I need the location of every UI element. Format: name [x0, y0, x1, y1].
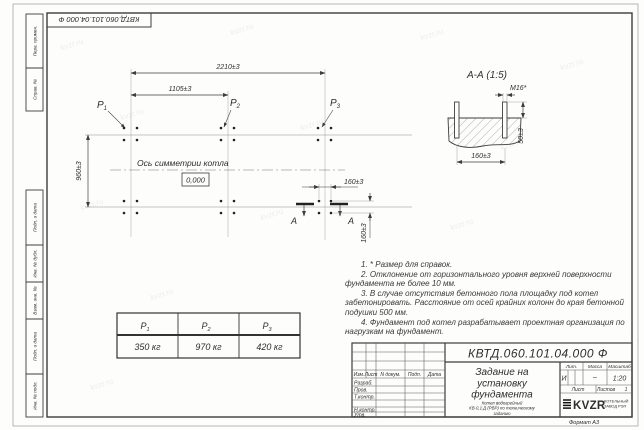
load-point-labels: P1 P2 P3	[97, 98, 341, 112]
svg-text:Лит.: Лит.	[565, 364, 577, 370]
dimension-bolt-thread: М16*	[495, 85, 527, 101]
symmetry-axis-label: Ось симметрии котла	[137, 158, 229, 168]
logo-text: KVZR	[573, 400, 606, 412]
svg-text:N докум.: N докум.	[380, 372, 400, 378]
role-labels: Разраб. Пров. Т.контр. Н.контр. Утв.	[354, 380, 376, 418]
loads-header-p1: P1	[140, 321, 149, 333]
loads-value-p2: 970 кг	[195, 342, 222, 352]
sheet-borders	[13, 4, 638, 426]
dimension-bolt-horizontal: 160±3	[302, 179, 364, 199]
side-cell-sprav-n: Справ. №	[33, 79, 38, 100]
symmetry-axis: Ось симметрии котла	[110, 158, 345, 170]
dimension-spacing: 160±3	[457, 146, 505, 165]
loads-header-p2: P2	[201, 321, 210, 333]
side-stamps: Перв. примен. Справ. № Подп. и дата Инв.…	[26, 14, 43, 417]
svg-text:960±3: 960±3	[76, 161, 83, 181]
svg-text:фундамента: фундамента	[471, 389, 533, 401]
side-cell-podp-data-2: Подп. и дата	[33, 332, 38, 361]
point-label-p1: P1	[97, 100, 107, 112]
drawing-sheet: kvzr.ru kvzr.ru kvzr.ru kvzr.ru kvzr.ru …	[0, 0, 644, 430]
sheet-count-row: Лист Листов 1	[571, 387, 628, 393]
top-designation-text: КВТД.060.101.04.000 Ф	[59, 15, 140, 24]
lit-mass-scale-headers: Лит. Масса Масштаб	[565, 364, 631, 370]
loads-header-p3: P3	[262, 321, 272, 333]
cut-letter-right: А	[347, 216, 354, 226]
svg-text:1105±3: 1105±3	[169, 86, 192, 93]
note-1: 1. * Размер для справок.	[345, 260, 632, 270]
mass-value: –	[592, 375, 597, 382]
dimension-total-2210: 2210±3	[131, 64, 325, 73]
section-view: А-А (1:5) М16* 50±3	[448, 70, 527, 165]
side-cell-perv-primen: Перв. примен.	[33, 26, 38, 57]
svg-text:Лист: Лист	[364, 372, 378, 378]
loads-value-p3: 420 кг	[256, 342, 283, 352]
note-4: 4. Фундамент под котел разрабатывает про…	[345, 318, 632, 337]
svg-text:Масштаб: Масштаб	[608, 364, 631, 370]
revision-headers: Изм. Лист N докум. Подп. Дата	[354, 372, 442, 378]
svg-text:2210±3: 2210±3	[215, 64, 239, 71]
dimension-rows-960: 960±3	[76, 135, 88, 207]
anchor-bolt-left	[455, 102, 460, 138]
note-2: 2. Отклонение от горизонтального уровня …	[345, 270, 632, 289]
svg-text:Масса: Масса	[588, 364, 603, 370]
logo-subtext-2: ЗАВОД РЭП	[604, 404, 626, 409]
svg-text:установку: установку	[476, 379, 528, 390]
svg-text:0,000: 0,000	[186, 176, 206, 185]
point-label-p2: P2	[230, 98, 241, 110]
svg-text:заданию: заданию	[492, 411, 511, 416]
point-label-p3: P3	[330, 98, 341, 110]
svg-text:М16*: М16*	[510, 85, 527, 92]
svg-text:Дата: Дата	[427, 372, 441, 378]
format-label: Формат А3	[569, 420, 600, 426]
svg-text:Задание на: Задание на	[475, 367, 529, 378]
drawing-canvas: КВТД.060.101.04.000 Ф Перв. примен. Спра…	[0, 0, 644, 430]
svg-text:Т.контр.: Т.контр.	[354, 395, 375, 401]
title-block: КВТД.060.101.04.000 Ф Изм. Лист N докум.…	[352, 343, 632, 418]
svg-text:Пров.: Пров.	[354, 388, 368, 394]
document-subject: Котел водогрейный КВ-0,1 Д (РВР) по техн…	[469, 401, 536, 416]
svg-text:Листов: Листов	[596, 387, 616, 393]
svg-text:1: 1	[625, 387, 628, 393]
svg-text:Утв.: Утв.	[354, 412, 366, 418]
side-cell-inv-podl: Инв. № подл.	[33, 381, 38, 410]
company-logo: KVZR КОТЕЛЬНЫЙ ЗАВОД РЭП	[563, 399, 629, 413]
note-3: 3. В случае отсутствия бетонного пола пл…	[345, 289, 632, 318]
svg-text:Лист: Лист	[571, 387, 585, 393]
cut-letter-left: А	[290, 216, 297, 226]
plan-view: 2210±3 1105±3 960±3 P1 P2 P3	[76, 64, 412, 243]
section-title: А-А (1:5)	[466, 70, 507, 81]
loads-value-p1: 350 кг	[134, 342, 161, 352]
svg-text:160±3: 160±3	[344, 179, 364, 186]
loads-table: P1 P2 P3 350 кг 970 кг 420 кг	[117, 313, 300, 358]
side-cell-vzam-inv: Взам. инв. №	[33, 286, 38, 314]
side-cell-podp-data-1: Подп. и дата	[33, 203, 38, 232]
svg-text:50±3: 50±3	[518, 128, 525, 144]
lit-mass-scale-values: И – 1:20	[561, 375, 626, 383]
dimension-half-1105: 1105±3	[131, 86, 228, 95]
svg-text:Разраб.: Разраб.	[354, 380, 373, 386]
technical-notes: 1. * Размер для справок. 2. Отклонение о…	[345, 260, 632, 337]
side-cell-inv-dubl: Инв. № дубл.	[33, 249, 38, 277]
anchor-bolt-right	[503, 102, 508, 138]
svg-text:Подп.: Подп.	[408, 372, 421, 378]
svg-text:160±3: 160±3	[361, 223, 368, 243]
scale-value: 1:20	[613, 376, 627, 383]
anchor-bolt-clusters	[123, 127, 333, 215]
top-designation-stamp: КВТД.060.101.04.000 Ф	[47, 13, 151, 27]
svg-text:160±3: 160±3	[471, 153, 491, 160]
svg-text:Изм.: Изм.	[354, 372, 365, 378]
level-mark: 0,000	[182, 173, 209, 186]
lit-value: И	[561, 376, 567, 383]
title-block-designation: КВТД.060.101.04.000 Ф	[468, 347, 608, 361]
load-point-leaders	[108, 110, 333, 128]
document-title: Задание на установку фундамента	[471, 367, 533, 401]
